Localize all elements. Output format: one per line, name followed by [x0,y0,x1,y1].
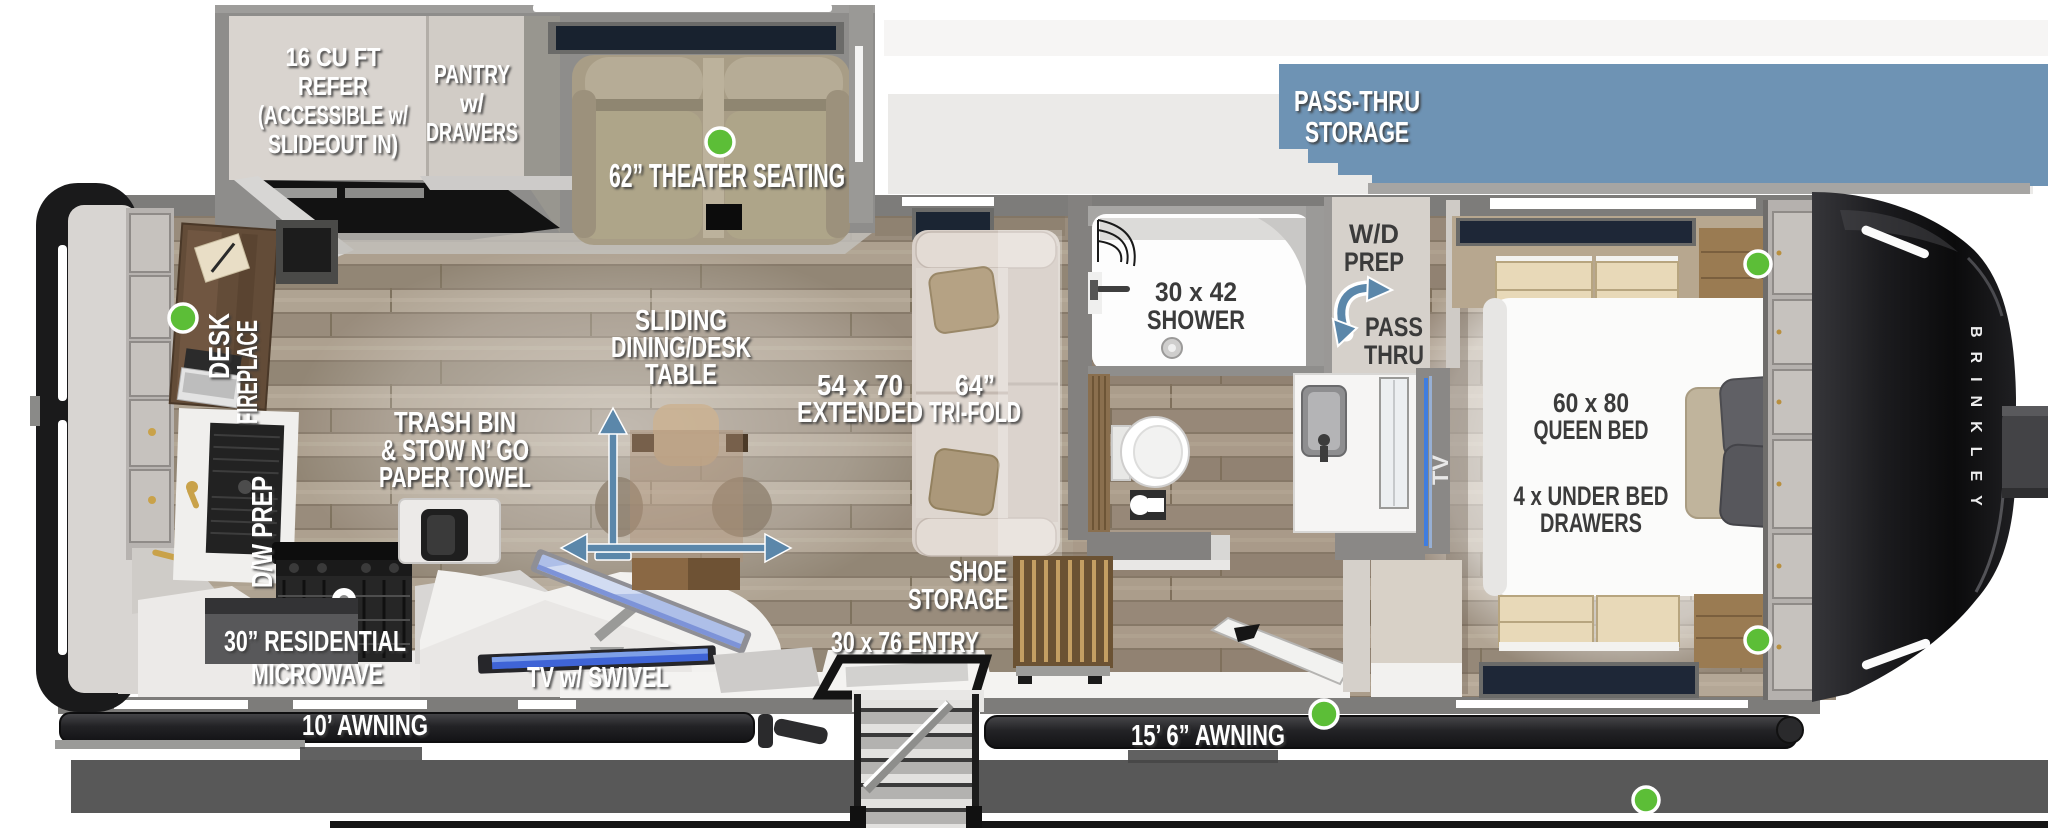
svg-text:SHOWER: SHOWER [1147,305,1245,335]
svg-text:MICROWAVE: MICROWAVE [251,659,383,691]
svg-text:15’ 6” AWNING: 15’ 6” AWNING [1131,720,1285,752]
svg-text:SLIDEOUT IN): SLIDEOUT IN) [268,129,398,159]
svg-text:30 x 42: 30 x 42 [1155,277,1237,307]
svg-text:DRAWERS: DRAWERS [1540,508,1642,538]
svg-text:THRU: THRU [1364,340,1424,370]
svg-text:QUEEN BED: QUEEN BED [1534,415,1649,445]
svg-text:w/: w/ [459,88,484,118]
svg-text:(ACCESSIBLE w/: (ACCESSIBLE w/ [258,100,408,130]
svg-text:TV w/ SWIVEL: TV w/ SWIVEL [527,662,669,694]
svg-text:30” RESIDENTIAL: 30” RESIDENTIAL [224,626,406,658]
svg-text:W/D: W/D [1349,219,1399,249]
svg-text:PASS-THRU: PASS-THRU [1294,86,1420,118]
svg-text:30 x 76 ENTRY: 30 x 76 ENTRY [831,627,979,659]
svg-text:STORAGE: STORAGE [908,584,1008,616]
svg-text:16 CU FT: 16 CU FT [286,42,381,72]
svg-text:TRI-FOLD: TRI-FOLD [929,397,1021,429]
svg-text:REFER: REFER [298,71,368,101]
svg-text:10’ AWNING: 10’ AWNING [302,710,428,742]
svg-text:STORAGE: STORAGE [1305,117,1409,149]
svg-text:D/W PREP: D/W PREP [247,476,279,588]
svg-text:4 x UNDER BED: 4 x UNDER BED [1514,481,1669,511]
svg-text:PASS: PASS [1365,312,1423,342]
svg-text:PREP: PREP [1344,247,1404,277]
svg-text:60 x 80: 60 x 80 [1553,388,1629,418]
svg-text:62” THEATER SEATING: 62” THEATER SEATING [609,157,845,194]
svg-text:TV: TV [1428,455,1453,485]
svg-text:PAPER TOWEL: PAPER TOWEL [379,462,531,494]
svg-text:DRAWERS: DRAWERS [426,117,518,147]
svg-text:PANTRY: PANTRY [434,59,510,89]
svg-text:EXTENDED: EXTENDED [797,397,923,429]
svg-text:BRINKLEY: BRINKLEY [1967,326,1984,520]
svg-text:FIREPLACE: FIREPLACE [232,320,264,424]
svg-text:TABLE: TABLE [645,359,717,391]
